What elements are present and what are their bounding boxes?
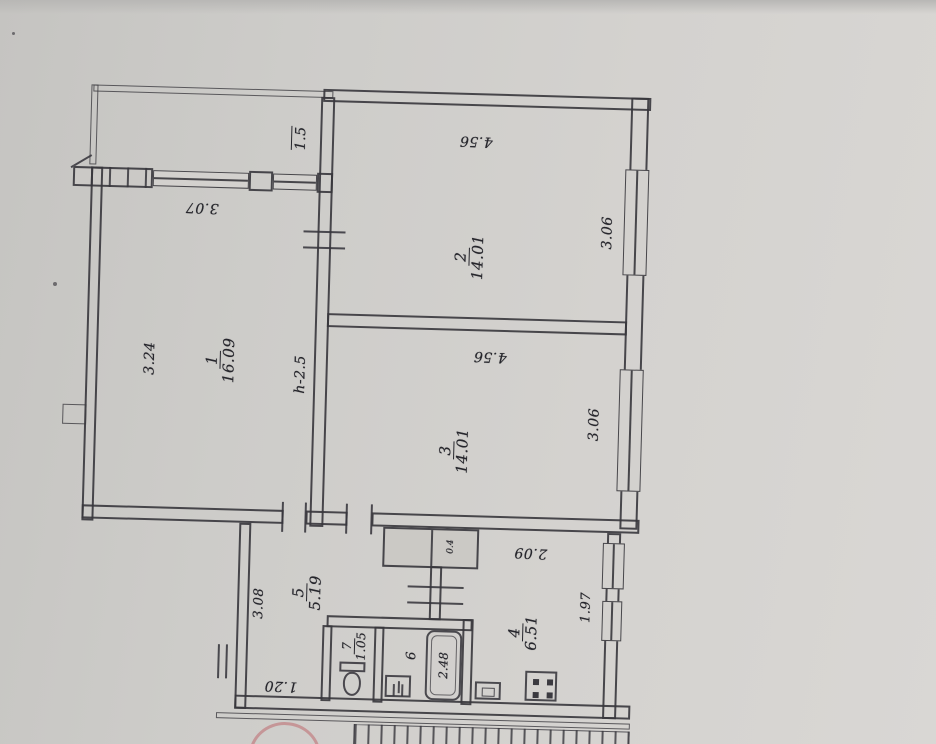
wc-fraction: 7 1.05	[341, 631, 369, 660]
door-jamb-tick	[281, 502, 284, 532]
toilet-symbol	[339, 662, 365, 673]
hall-number: 5	[290, 583, 308, 602]
toilet-bowl-symbol	[343, 672, 362, 696]
wall-left-hall	[234, 523, 251, 709]
room3-right-dim: 3.06	[586, 408, 603, 442]
wall-wc-bath	[372, 627, 384, 703]
room1-label: 1 16.09	[202, 337, 238, 383]
balcony-railing-left	[89, 84, 98, 164]
balcony-area-value: 1.5	[291, 126, 310, 150]
apartment-plan: 1 16.09 3.24 h-2.5 2 14.01 4.56 3.06 3 1…	[47, 68, 670, 744]
entrance-line	[217, 644, 220, 678]
window-kitchen-small	[601, 601, 622, 642]
kitchen-right-dim: 1.97	[578, 592, 594, 623]
wall-bath-top	[326, 615, 472, 631]
window-room2	[622, 169, 649, 276]
room3-number: 3	[437, 441, 455, 460]
floor-plan-scan: 1 16.09 3.24 h-2.5 2 14.01 4.56 3.06 3 1…	[0, 0, 936, 744]
room1-fraction: 1 16.09	[203, 337, 238, 383]
room3-fraction: 3 14.01	[437, 427, 472, 473]
window-kitchen	[602, 543, 625, 590]
vent-window-room1	[62, 404, 87, 425]
hall-bottom-dim: 1.20	[264, 677, 298, 694]
wall-wc-left	[320, 625, 332, 701]
room3-area: 14.01	[454, 428, 471, 474]
wall-left-room1	[81, 166, 103, 520]
hall-label: 5 5.19	[289, 574, 324, 610]
washbasin-symbol	[385, 675, 412, 698]
balcony-wall-block	[73, 166, 154, 188]
closet	[382, 527, 479, 570]
wall-room2-room3	[327, 313, 627, 335]
wall-bath-kitchen	[460, 619, 473, 705]
closet-divider	[430, 530, 433, 566]
window-room3	[616, 369, 643, 492]
balcony-door	[273, 174, 317, 191]
room2-fraction: 2 14.01	[452, 234, 487, 280]
balcony-area-label: 1.5	[293, 126, 310, 150]
kitchen-fraction: 4 6.51	[506, 614, 540, 650]
room3-top-dim: 4.56	[473, 348, 507, 365]
room1-number: 1	[203, 351, 221, 370]
hall-area: 5.19	[307, 575, 324, 611]
wall-rooms-bottom-b	[305, 511, 347, 526]
room2-area: 14.01	[469, 234, 486, 280]
kitchen-label: 4 6.51	[505, 614, 540, 650]
room2-right-dim: 3.06	[599, 216, 616, 250]
room1-area: 16.09	[220, 337, 237, 383]
stove-symbol	[525, 671, 558, 702]
paper-speck	[12, 32, 15, 35]
balcony-window	[153, 170, 249, 189]
room2-top-dim: 4.56	[459, 132, 493, 149]
wall-rooms-bottom-a	[81, 504, 283, 524]
kitchen-area: 6.51	[523, 615, 540, 651]
hall-left-dim: 3.08	[251, 588, 267, 619]
balcony-width-dim: 3.07	[185, 199, 219, 216]
bath-number-label: 6	[404, 651, 419, 660]
paper-speck	[53, 282, 57, 286]
room3-label: 3 14.01	[436, 427, 472, 473]
kitchen-number: 4	[506, 623, 524, 642]
wc-label: 7 1.05	[340, 631, 369, 660]
wc-area: 1.05	[355, 632, 369, 661]
kitchen-top-dim: 2.09	[514, 544, 548, 561]
hall-fraction: 5 5.19	[290, 574, 324, 610]
room2-label: 2 14.01	[451, 234, 487, 280]
closet-area-label: 0.4	[446, 539, 456, 554]
red-stamp	[248, 721, 322, 744]
wall-room1-room23	[309, 97, 335, 527]
room1-left-dim: 3.24	[141, 341, 158, 375]
entrance-line	[225, 644, 228, 678]
wall-top	[323, 89, 651, 111]
kitchen-sink-symbol	[475, 681, 501, 700]
balcony-wall-block	[249, 171, 274, 192]
balcony-railing-top	[93, 84, 333, 98]
bath-area-label: 2.48	[436, 652, 451, 679]
door-jamb-tick	[345, 504, 348, 534]
ceiling-height-note: h-2.5	[292, 355, 309, 394]
wall-hall-kitchen	[429, 566, 443, 620]
room2-number: 2	[452, 248, 470, 267]
